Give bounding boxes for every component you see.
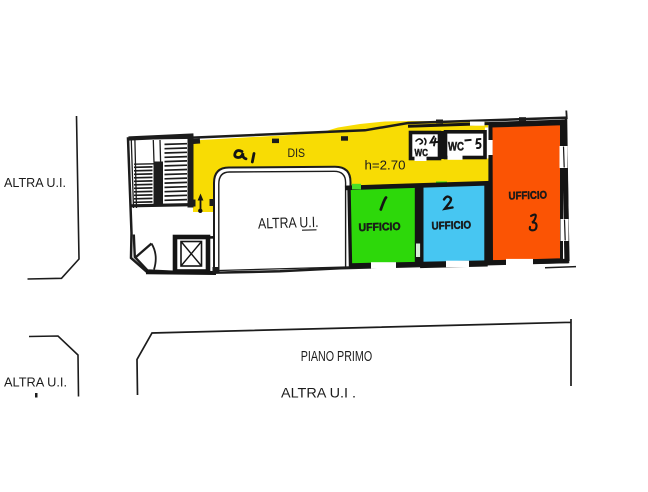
svg-text:ALTRA U.I.: ALTRA U.I. <box>4 175 66 190</box>
svg-text:UFFICIO: UFFICIO <box>431 219 471 232</box>
svg-text:DIS: DIS <box>288 146 306 160</box>
svg-text:WC: WC <box>448 142 464 154</box>
svg-text:ALTRA U.I.: ALTRA U.I. <box>4 375 67 390</box>
svg-text:ALTRA U.I .: ALTRA U.I . <box>281 385 356 401</box>
svg-text:UFFICIO: UFFICIO <box>358 221 401 234</box>
svg-text:WC: WC <box>415 148 429 159</box>
svg-text:PIANO PRIMO: PIANO PRIMO <box>301 349 373 365</box>
svg-text:h=2.70: h=2.70 <box>365 158 406 173</box>
svg-text:UFFICIO: UFFICIO <box>508 189 547 202</box>
